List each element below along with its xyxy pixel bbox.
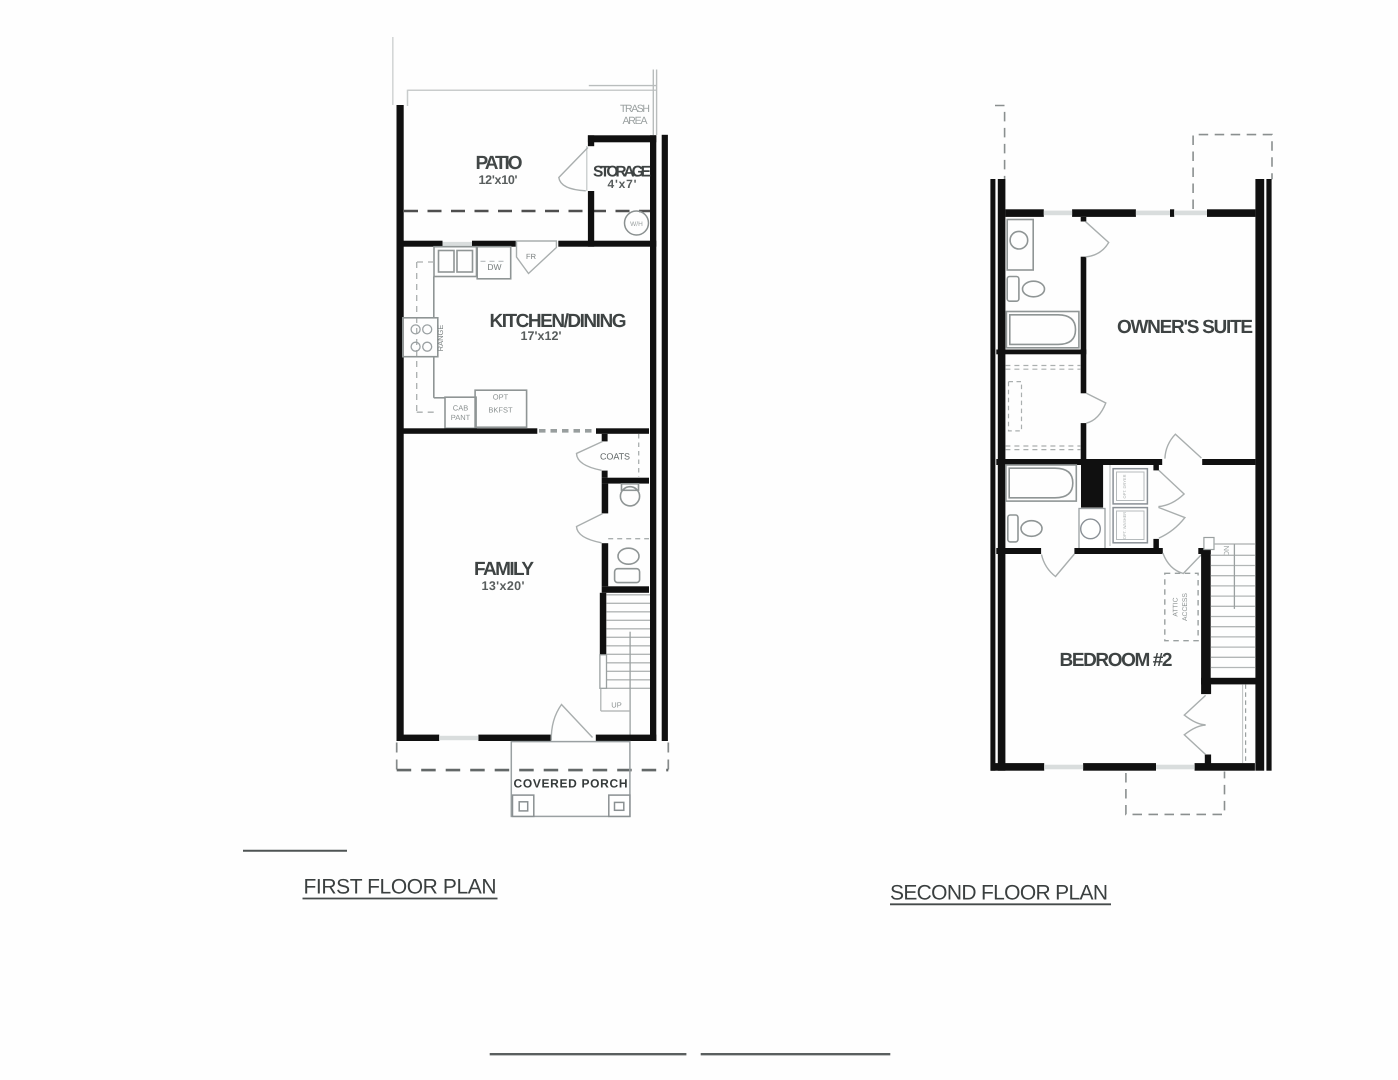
svg-text:ATTIC: ATTIC	[1173, 597, 1180, 616]
svg-text:AREA: AREA	[623, 115, 648, 127]
svg-text:BEDROOM #2: BEDROOM #2	[1060, 650, 1173, 671]
svg-text:17'x12': 17'x12'	[521, 329, 562, 343]
svg-text:PANT: PANT	[451, 413, 471, 422]
svg-text:OPT. WASHER: OPT. WASHER	[1122, 512, 1127, 540]
svg-text:FIRST FLOOR PLAN: FIRST FLOOR PLAN	[304, 876, 497, 899]
svg-text:COATS: COATS	[600, 452, 630, 462]
svg-text:FR: FR	[526, 252, 537, 261]
svg-text:SECOND FLOOR PLAN: SECOND FLOOR PLAN	[890, 882, 1108, 905]
svg-text:W/H: W/H	[630, 221, 643, 228]
svg-text:BKFST: BKFST	[488, 406, 513, 415]
svg-text:OPT. DRYER: OPT. DRYER	[1122, 474, 1127, 498]
svg-text:UP: UP	[611, 701, 621, 710]
svg-text:COVERED PORCH: COVERED PORCH	[514, 777, 628, 791]
svg-text:12'x10': 12'x10'	[479, 173, 518, 187]
svg-text:13'x20': 13'x20'	[482, 579, 525, 593]
svg-text:4'x7': 4'x7'	[608, 177, 637, 191]
svg-text:TRASH: TRASH	[620, 103, 650, 115]
svg-text:ACCESS: ACCESS	[1182, 593, 1189, 621]
svg-text:OPT: OPT	[493, 393, 509, 402]
svg-text:OWNER'S SUITE: OWNER'S SUITE	[1117, 317, 1253, 338]
svg-text:CAB: CAB	[453, 404, 468, 413]
svg-text:RANGE: RANGE	[436, 325, 445, 352]
svg-text:PATIO: PATIO	[476, 153, 523, 174]
svg-text:DW: DW	[487, 262, 501, 272]
svg-text:FAMILY: FAMILY	[474, 559, 534, 580]
